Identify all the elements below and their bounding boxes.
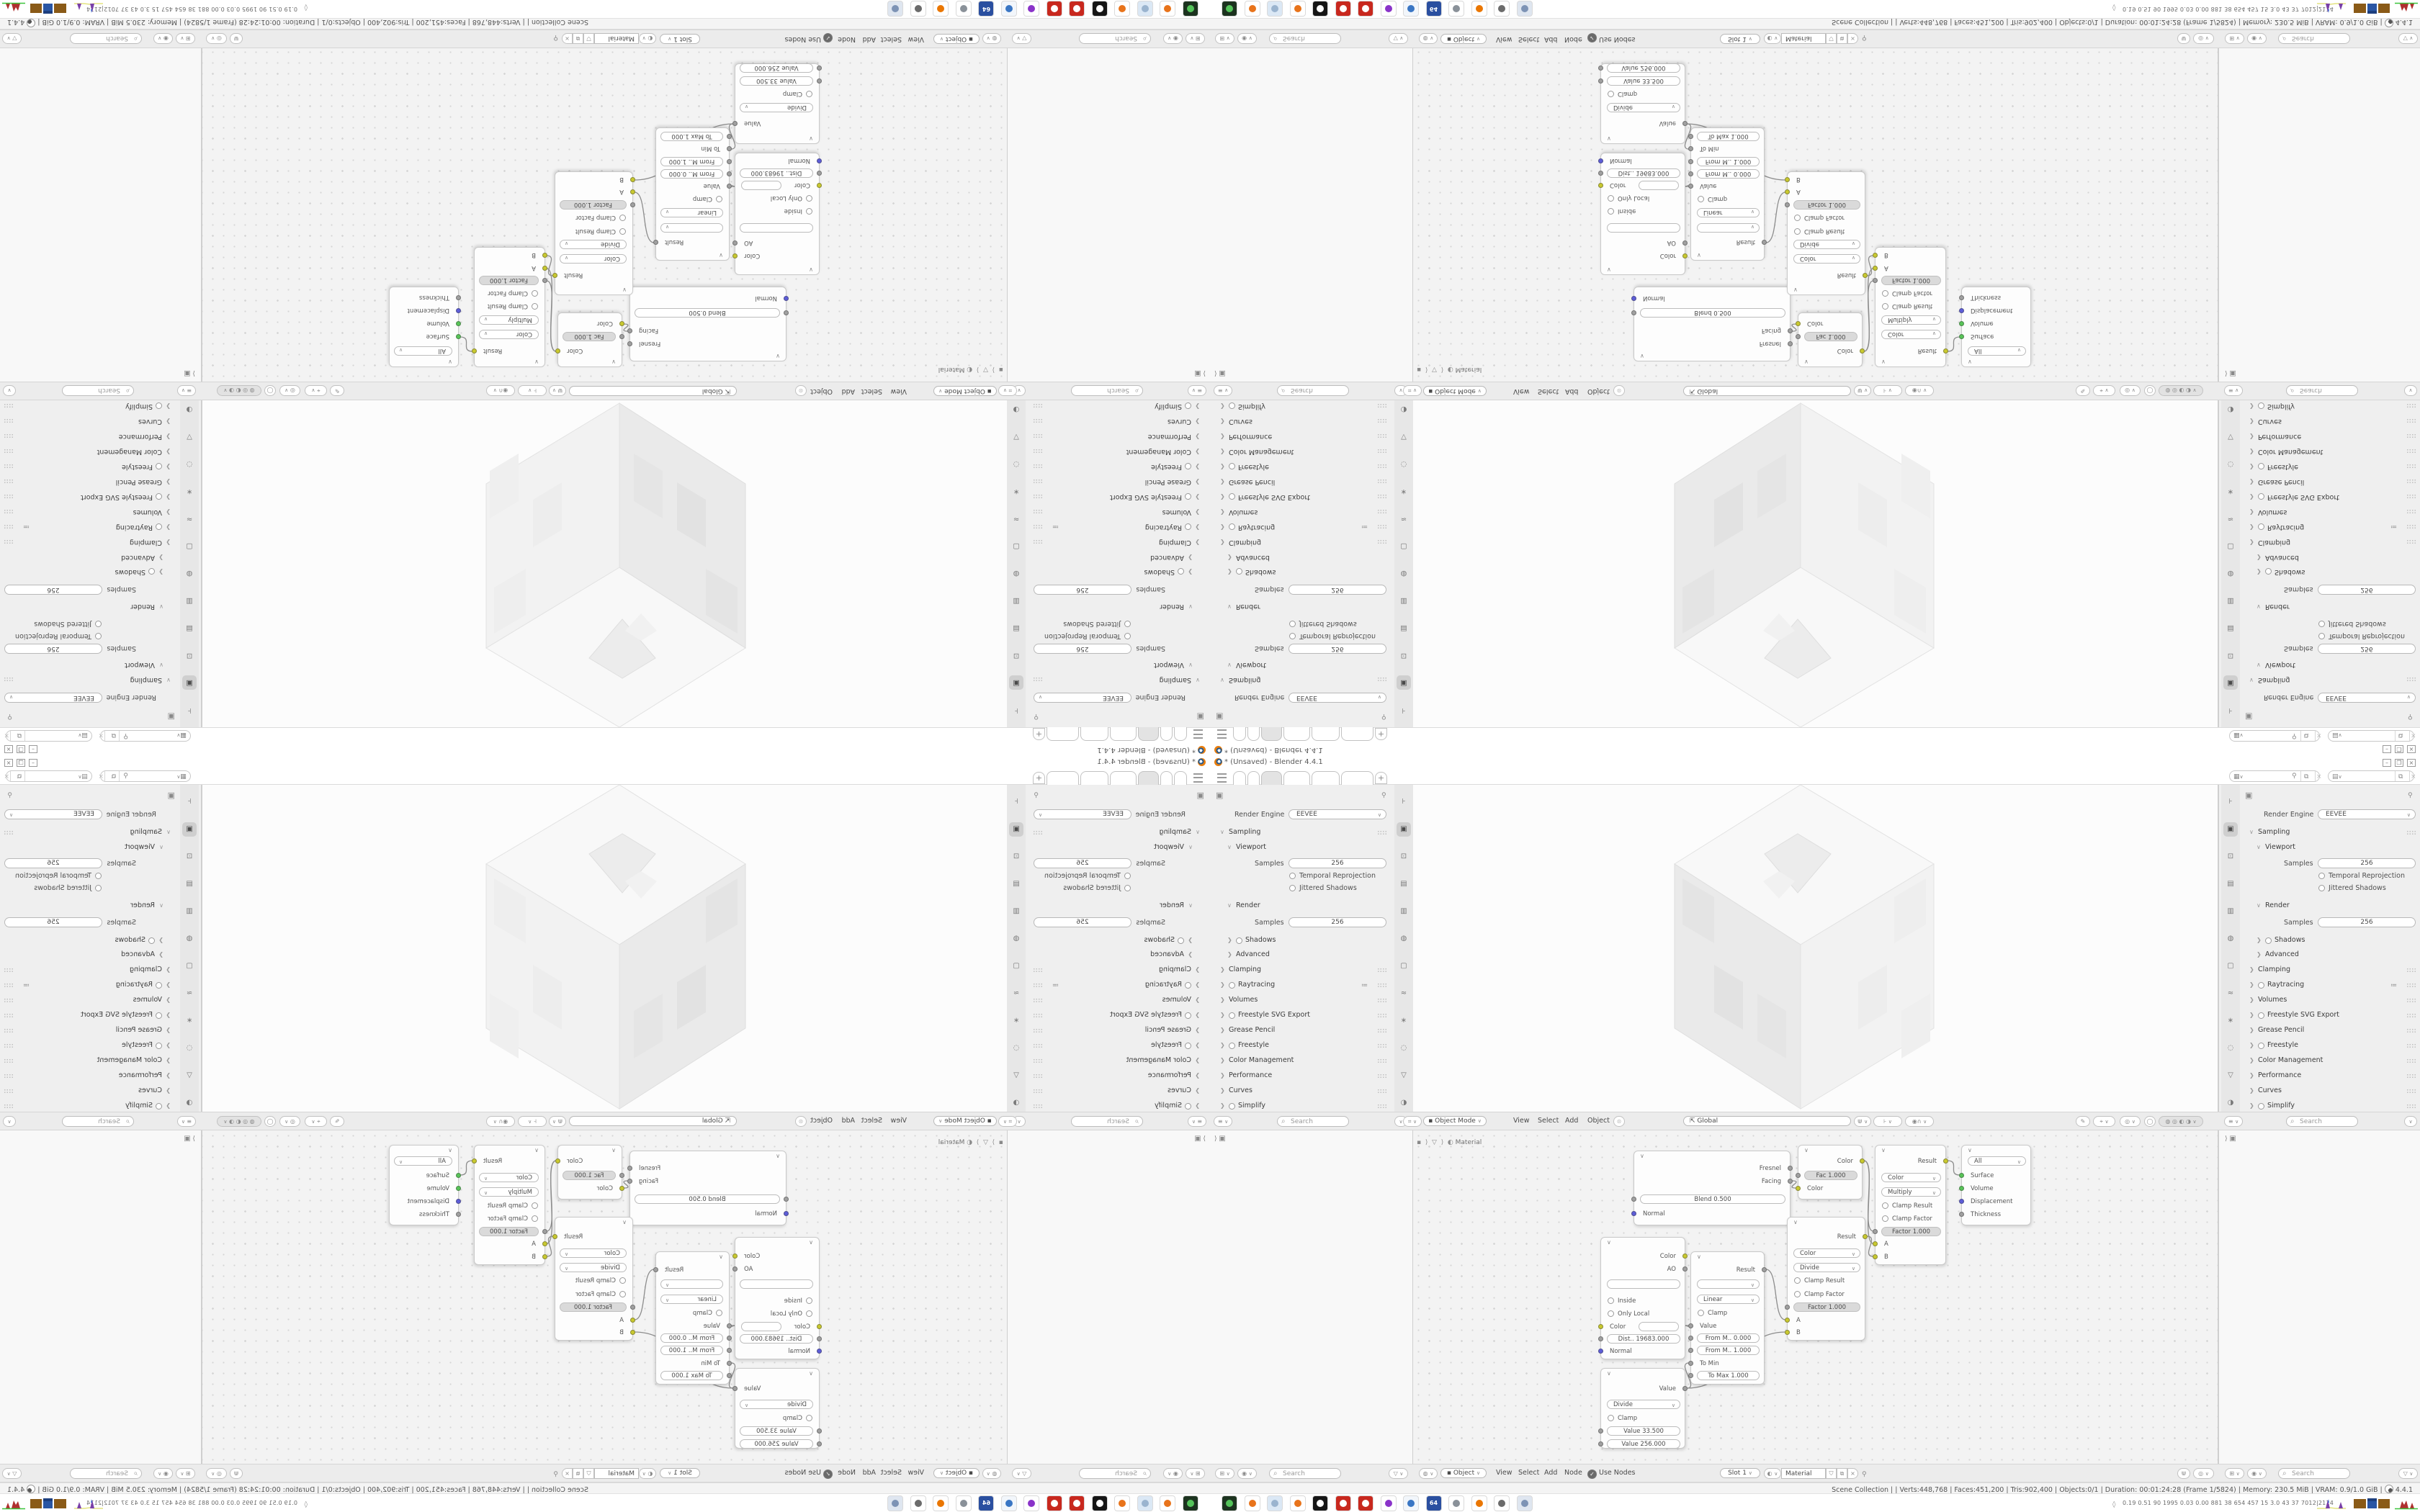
- expand-icon[interactable]: ❯: [2249, 494, 2254, 500]
- input-socket[interactable]: [619, 334, 624, 339]
- drag-handle-icon[interactable]: [1033, 509, 1043, 514]
- physics-properties-tab-icon[interactable]: ◌: [182, 456, 197, 471]
- enable-checkbox[interactable]: [156, 402, 162, 409]
- expand-icon[interactable]: ∨: [2257, 844, 2261, 850]
- object-properties-tab-icon[interactable]: ▢: [1009, 959, 1023, 973]
- input-socket[interactable]: [1785, 1318, 1790, 1323]
- enum-dropdown[interactable]: All∨: [394, 346, 452, 356]
- drag-handle-icon[interactable]: [4, 524, 14, 529]
- panel-section-label[interactable]: Curves: [1168, 1086, 1191, 1094]
- output-socket[interactable]: [732, 121, 738, 126]
- snap-magnet-icon[interactable]: ⋓ ∨: [1854, 385, 1871, 396]
- tools-app-icon[interactable]: [956, 1, 972, 17]
- panel-section-label[interactable]: Render: [130, 603, 155, 611]
- input-socket[interactable]: [1598, 1336, 1603, 1341]
- drag-handle-icon[interactable]: [4, 983, 14, 988]
- expand-icon[interactable]: ❯: [2249, 996, 2254, 1003]
- operator-icon[interactable]: ⊛: [1613, 385, 1625, 396]
- value-field[interactable]: Blend 0.500: [1640, 308, 1785, 318]
- node-checkbox[interactable]: [716, 196, 722, 202]
- panel-section-label[interactable]: Clamping: [1229, 539, 1261, 546]
- view-layer-properties-tab-icon[interactable]: ▤: [1009, 877, 1023, 891]
- render-properties-tab-icon[interactable]: ▣: [2223, 675, 2238, 690]
- workspace-tab[interactable]: [1080, 771, 1108, 785]
- pin-icon[interactable]: ⚲: [1381, 791, 1386, 801]
- enum-dropdown[interactable]: All∨: [1968, 1156, 2026, 1166]
- menu-view[interactable]: View: [890, 382, 907, 400]
- panel-section-label[interactable]: Volumes: [1229, 996, 1258, 1004]
- scene-properties-tab-icon[interactable]: ▥: [182, 593, 197, 608]
- expand-icon[interactable]: ❯: [2249, 403, 2254, 410]
- node-checkbox[interactable]: [1608, 208, 1614, 215]
- settings-red-2-app-icon[interactable]: [1047, 1495, 1062, 1511]
- value-field[interactable]: Blend 0.500: [635, 308, 780, 318]
- ambient-occlusion-node[interactable]: ∨Color AO Inside Only LocalColor Dist.. …: [735, 1237, 820, 1359]
- panel-section-label[interactable]: Render: [2265, 901, 2290, 909]
- drag-handle-icon[interactable]: [2406, 403, 2416, 408]
- panel-section-label[interactable]: Viewport: [1154, 843, 1184, 851]
- enable-checkbox[interactable]: [1229, 982, 1235, 989]
- unlink-material-icon[interactable]: ×: [562, 1468, 573, 1479]
- panel-section-label[interactable]: Sampling: [1229, 676, 1260, 684]
- drag-handle-icon[interactable]: [1033, 539, 1043, 544]
- input-socket[interactable]: [1688, 1336, 1693, 1341]
- gimp-dark-app-icon[interactable]: [1312, 1, 1328, 17]
- render-properties-tab-icon[interactable]: ▣: [1009, 675, 1023, 690]
- enable-checkbox[interactable]: [2258, 463, 2264, 469]
- panel-section-label[interactable]: Advanced: [1236, 950, 1270, 958]
- input-socket[interactable]: [817, 1441, 822, 1446]
- option-checkbox[interactable]: [2318, 885, 2325, 891]
- panel-section-label[interactable]: Volumes: [1229, 508, 1258, 516]
- object-filter-dropdown[interactable]: ◉ ∨: [153, 1468, 173, 1479]
- samples-value-field[interactable]: 256: [4, 585, 102, 595]
- pin-icon[interactable]: ⚲: [7, 791, 12, 801]
- enable-checkbox[interactable]: [2258, 523, 2264, 530]
- panel-section-label[interactable]: Sampling: [1160, 676, 1191, 684]
- samples-value-field[interactable]: 256: [1289, 858, 1386, 868]
- expand-icon[interactable]: ❯: [1220, 524, 1225, 531]
- collapse-node-icon[interactable]: ∨: [1640, 353, 1644, 359]
- expand-icon[interactable]: ❯: [1195, 494, 1200, 500]
- enable-checkbox[interactable]: [1229, 463, 1235, 469]
- expand-icon[interactable]: ❯: [1188, 937, 1193, 943]
- panel-section-label[interactable]: Render: [1160, 901, 1184, 909]
- tool-properties-tab-icon[interactable]: ⊦: [1009, 795, 1023, 809]
- panel-section-label[interactable]: Freestyle SVG Export: [81, 493, 153, 501]
- input-socket[interactable]: [1598, 66, 1603, 71]
- expand-icon[interactable]: ❯: [1195, 464, 1200, 470]
- render-properties-tab-icon[interactable]: ▣: [2223, 822, 2238, 837]
- expand-icon[interactable]: ❯: [1220, 418, 1225, 425]
- output-socket[interactable]: [1943, 348, 1948, 354]
- pin-icon[interactable]: ⚲: [1381, 711, 1386, 721]
- enable-checkbox[interactable]: [1236, 937, 1242, 944]
- drag-handle-icon[interactable]: [1377, 1058, 1387, 1063]
- enable-checkbox[interactable]: [1185, 1103, 1191, 1110]
- option-checkbox[interactable]: [2318, 873, 2325, 879]
- drag-handle-icon[interactable]: [4, 1074, 14, 1079]
- expand-icon[interactable]: ❯: [158, 951, 163, 958]
- option-checkbox[interactable]: [1124, 873, 1131, 879]
- material-properties-tab-icon[interactable]: ◑: [2223, 402, 2238, 416]
- panel-section-label[interactable]: Color Management: [1126, 1056, 1191, 1064]
- enable-checkbox[interactable]: [1236, 568, 1242, 575]
- value-field[interactable]: Value 33.500: [1607, 76, 1680, 86]
- modifiers-properties-tab-icon[interactable]: ≈: [2223, 986, 2238, 1001]
- value-field[interactable]: Factor 1.000: [1793, 1302, 1860, 1312]
- expand-icon[interactable]: ∨: [1188, 603, 1193, 610]
- view-layer-properties-tab-icon[interactable]: ▤: [182, 877, 197, 891]
- input-socket[interactable]: [1873, 1254, 1878, 1259]
- enable-checkbox[interactable]: [156, 523, 162, 530]
- panel-section-label[interactable]: Curves: [138, 1086, 162, 1094]
- option-checkbox[interactable]: [1124, 621, 1131, 627]
- panel-section-label[interactable]: Color Management: [1229, 1056, 1294, 1064]
- expand-icon[interactable]: ❯: [166, 509, 171, 516]
- workspace-tab[interactable]: [1261, 771, 1282, 785]
- material-properties-tab-icon[interactable]: ◑: [182, 1096, 197, 1110]
- expand-icon[interactable]: ❯: [166, 403, 171, 410]
- expand-icon[interactable]: ❯: [2249, 1072, 2254, 1079]
- pin-icon[interactable]: ⚲: [1862, 32, 1867, 42]
- output-socket[interactable]: [1788, 328, 1793, 333]
- expand-icon[interactable]: ❯: [1220, 479, 1225, 485]
- mode-selector[interactable]: ▪ Object Mode ∨: [933, 386, 997, 396]
- expand-icon[interactable]: ∨: [159, 902, 163, 909]
- gimp-app-icon[interactable]: [910, 1495, 926, 1511]
- input-socket[interactable]: [1959, 334, 1964, 339]
- input-socket[interactable]: [1598, 1349, 1603, 1354]
- panel-section-label[interactable]: Freestyle: [1151, 1041, 1182, 1049]
- scene-selector[interactable]: ▦∨ ⚲ ⧉ ×: [100, 730, 191, 742]
- drag-handle-icon[interactable]: [1033, 830, 1043, 835]
- search-input[interactable]: Search: [2278, 1468, 2350, 1479]
- panel-section-label[interactable]: Freestyle SVG Export: [2267, 1011, 2339, 1019]
- option-checkbox[interactable]: [1289, 885, 1296, 891]
- collapse-node-icon[interactable]: ∨: [719, 1254, 723, 1260]
- enable-checkbox[interactable]: [1229, 493, 1235, 500]
- value-field[interactable]: To Max 1.000: [660, 132, 723, 141]
- drag-handle-icon[interactable]: [2406, 1043, 2416, 1048]
- collapse-node-icon[interactable]: ∨: [1793, 287, 1798, 293]
- panel-section-label[interactable]: Sampling: [2258, 828, 2290, 836]
- workspace-tab[interactable]: [1233, 771, 1246, 785]
- node-checkbox[interactable]: [532, 290, 538, 297]
- view-layer-properties-tab-icon[interactable]: ▤: [1009, 621, 1023, 635]
- drag-handle-icon[interactable]: [1377, 403, 1387, 408]
- expand-icon[interactable]: ❯: [1220, 1057, 1225, 1063]
- expand-icon[interactable]: ❯: [166, 996, 171, 1003]
- overlays-dropdown[interactable]: ◎ ∨: [279, 1116, 300, 1127]
- gimp-app-icon[interactable]: [1494, 1, 1510, 17]
- menu-object[interactable]: Object: [1587, 1112, 1610, 1130]
- mix-divide-node[interactable]: ∨Result Color∨Divide∨ Clamp Result Clamp…: [1787, 1217, 1865, 1341]
- tool-properties-tab-icon[interactable]: ⊦: [1397, 795, 1411, 809]
- object-filter-dropdown[interactable]: ◉ ∨: [153, 33, 173, 44]
- samples-value-field[interactable]: 256: [2318, 585, 2416, 595]
- enable-checkbox[interactable]: [2258, 1012, 2264, 1019]
- physics-properties-tab-icon[interactable]: ◌: [1009, 1041, 1023, 1056]
- scene-properties-tab-icon[interactable]: ▥: [2223, 593, 2238, 608]
- expand-icon[interactable]: ❯: [1220, 996, 1225, 1003]
- particles-properties-tab-icon[interactable]: ∗: [2223, 484, 2238, 498]
- unlink-icon[interactable]: ×: [2316, 730, 2322, 740]
- output-socket[interactable]: [1788, 341, 1793, 346]
- enable-checkbox[interactable]: [1229, 1043, 1235, 1049]
- new-material-icon[interactable]: ⧉: [1837, 33, 1847, 44]
- pin-icon[interactable]: ⚲: [1034, 791, 1039, 801]
- gizmo-dropdown[interactable]: ⌖ ∨: [305, 1116, 327, 1127]
- collapse-node-icon[interactable]: ∨: [809, 135, 813, 142]
- panel-section-label[interactable]: Color Management: [97, 448, 162, 456]
- value-field[interactable]: Value 256.000: [1607, 1439, 1680, 1449]
- value-field[interactable]: Fac 1.000: [1804, 332, 1857, 341]
- floppy-64-app-icon[interactable]: 64: [1426, 1495, 1442, 1511]
- tools-app-icon[interactable]: [1448, 1, 1464, 17]
- enum-dropdown[interactable]: Color∨: [1793, 254, 1860, 264]
- enum-dropdown[interactable]: Linear∨: [660, 208, 723, 217]
- invert-color-node[interactable]: ∨Color Fac 1.000Color: [557, 1145, 622, 1200]
- expand-icon[interactable]: ∨: [2257, 603, 2261, 610]
- input-socket[interactable]: [542, 1229, 547, 1234]
- filter-funnel-dropdown[interactable]: ▽ ∨: [2, 33, 22, 44]
- invert-color-node[interactable]: ∨Color Fac 1.000Color: [1798, 312, 1863, 367]
- panel-section-label[interactable]: Curves: [1229, 1086, 1252, 1094]
- search-input[interactable]: Search: [1079, 1468, 1151, 1479]
- add-workspace-button[interactable]: +: [1033, 772, 1045, 784]
- add-workspace-button[interactable]: +: [1375, 772, 1387, 784]
- expand-icon[interactable]: ❯: [1195, 981, 1200, 988]
- enum-dropdown[interactable]: Multiply∨: [1881, 315, 1941, 325]
- node-checkbox[interactable]: [1882, 303, 1888, 310]
- input-socket[interactable]: [456, 1212, 461, 1217]
- panel-section-label[interactable]: Shadows: [115, 936, 145, 944]
- ambient-occlusion-node[interactable]: ∨Color AO Inside Only LocalColor Dist.. …: [1600, 153, 1685, 275]
- expand-icon[interactable]: ∨: [1188, 662, 1193, 668]
- overlays-dropdown[interactable]: ◎ ∨: [2193, 1468, 2214, 1479]
- editor-type-dropdown[interactable]: ◍ ∨: [1419, 33, 1438, 44]
- drag-handle-icon[interactable]: [1377, 449, 1387, 454]
- maximize-button[interactable]: ❐: [17, 759, 25, 767]
- workspace-tab[interactable]: [1312, 727, 1340, 741]
- os-title-bar[interactable]: * (Unsaved) - Blender 4.4.1 – ❐ ×: [0, 756, 1210, 768]
- panel-section-label[interactable]: Clamping: [1159, 539, 1191, 546]
- pin-icon[interactable]: ⚲: [2408, 711, 2413, 721]
- drag-handle-icon[interactable]: [1033, 983, 1043, 988]
- render-engine-dropdown[interactable]: EEVEE ∨: [4, 809, 102, 819]
- collapse-node-icon[interactable]: ∨: [1793, 1219, 1798, 1225]
- enum-dropdown[interactable]: Divide∨: [1793, 1263, 1860, 1272]
- enable-checkbox[interactable]: [2258, 493, 2264, 500]
- value-field[interactable]: [740, 1279, 813, 1289]
- mode-selector[interactable]: ▪ Object Mode ∨: [1423, 1116, 1487, 1126]
- drag-handle-icon[interactable]: [1033, 677, 1043, 682]
- modifiers-properties-tab-icon[interactable]: ≈: [1009, 511, 1023, 526]
- enable-checkbox[interactable]: [156, 1103, 162, 1110]
- workspace-tab[interactable]: [1047, 727, 1079, 741]
- expand-icon[interactable]: ∨: [2257, 902, 2261, 909]
- input-socket[interactable]: [1688, 159, 1693, 164]
- app-menu-icon[interactable]: [1217, 773, 1227, 783]
- enum-dropdown[interactable]: Divide∨: [1607, 103, 1680, 112]
- node-checkbox[interactable]: [619, 1291, 626, 1297]
- firefox-app-icon[interactable]: [1160, 1495, 1176, 1511]
- particles-properties-tab-icon[interactable]: ∗: [182, 484, 197, 498]
- panel-section-label[interactable]: Viewport: [1154, 661, 1184, 669]
- output-properties-tab-icon[interactable]: ⊡: [1397, 850, 1411, 864]
- drag-handle-icon[interactable]: [1033, 1028, 1043, 1033]
- annotate-dropdown[interactable]: ✎: [330, 1116, 344, 1127]
- enum-dropdown[interactable]: Color∨: [479, 330, 539, 339]
- enable-checkbox[interactable]: [1185, 402, 1191, 409]
- samples-value-field[interactable]: 256: [1289, 917, 1386, 927]
- expand-icon[interactable]: ❯: [1195, 996, 1200, 1003]
- enable-checkbox[interactable]: [1229, 523, 1235, 530]
- input-socket[interactable]: [727, 1323, 732, 1328]
- panel-section-label[interactable]: Freestyle: [1151, 463, 1182, 471]
- filter-funnel-dropdown[interactable]: ▽ ∨: [2, 1468, 22, 1479]
- drag-handle-icon[interactable]: [4, 830, 14, 835]
- input-socket[interactable]: [542, 1254, 547, 1259]
- tool-properties-tab-icon[interactable]: ⊦: [1009, 703, 1023, 717]
- view-layer-properties-tab-icon[interactable]: ▤: [1397, 621, 1411, 635]
- collapsed-panel-icon[interactable]: ⟩ ▣: [1194, 1135, 1206, 1143]
- minimize-button[interactable]: –: [2383, 759, 2391, 767]
- color-field[interactable]: [1639, 181, 1679, 190]
- firefox-2-app-icon[interactable]: [1290, 1495, 1306, 1511]
- unlink-icon[interactable]: ×: [2411, 772, 2416, 782]
- panel-section-label[interactable]: Grease Pencil: [116, 478, 162, 486]
- workspace-tab[interactable]: [1110, 771, 1137, 785]
- workspace-tab[interactable]: [1138, 771, 1159, 785]
- node-checkbox[interactable]: [1882, 1215, 1888, 1222]
- scene-properties-tab-icon[interactable]: ▥: [182, 904, 197, 919]
- panel-section-label[interactable]: Grease Pencil: [116, 1026, 162, 1034]
- tool-properties-tab-icon[interactable]: ⊦: [1397, 703, 1411, 717]
- output-socket[interactable]: [627, 1179, 632, 1184]
- output-socket[interactable]: [472, 348, 477, 354]
- output-properties-tab-icon[interactable]: ⊡: [2223, 648, 2238, 662]
- drag-handle-icon[interactable]: [4, 677, 14, 682]
- pin-icon[interactable]: ⚲: [7, 711, 12, 721]
- drag-handle-icon[interactable]: [2406, 968, 2416, 973]
- expand-icon[interactable]: ❯: [2249, 1057, 2254, 1063]
- panel-section-label[interactable]: Simplify: [125, 1102, 153, 1110]
- search-input[interactable]: Search: [2286, 1116, 2358, 1127]
- panel-section-label[interactable]: Advanced: [1150, 554, 1184, 562]
- input-socket[interactable]: [456, 1199, 461, 1204]
- enable-checkbox[interactable]: [1185, 463, 1191, 469]
- panel-section-label[interactable]: Clamping: [130, 539, 162, 546]
- panel-section-label[interactable]: Performance: [1229, 1071, 1272, 1079]
- material-icon-dropdown[interactable]: ◐ ∨: [639, 33, 656, 44]
- object-filter-dropdown[interactable]: ◉ ∨: [2247, 1468, 2267, 1479]
- gizmo-dropdown[interactable]: ⌖ ∨: [2093, 385, 2115, 396]
- overlays-dropdown[interactable]: ◎ ∨: [279, 385, 300, 396]
- menu-node[interactable]: Node: [838, 1464, 856, 1482]
- collapse-node-icon[interactable]: ∨: [622, 287, 627, 293]
- workspace-tab[interactable]: [1312, 771, 1340, 785]
- expand-icon[interactable]: ❯: [1220, 981, 1225, 988]
- menu-add[interactable]: Add: [1544, 1464, 1557, 1482]
- panel-section-label[interactable]: Volumes: [133, 508, 162, 516]
- samples-value-field[interactable]: 256: [1034, 917, 1131, 927]
- expand-icon[interactable]: ❯: [1220, 966, 1225, 973]
- fake-user-shield-icon[interactable]: ⛉: [1826, 1468, 1837, 1479]
- object-filter-dropdown[interactable]: ◉ ∨: [1237, 1468, 1257, 1479]
- panel-section-label[interactable]: Raytracing: [2267, 981, 2304, 989]
- editor-type-dropdown[interactable]: ⌗ ∨: [1403, 385, 1422, 396]
- input-socket[interactable]: [727, 184, 732, 189]
- tool-properties-tab-icon[interactable]: ⊦: [2223, 703, 2238, 717]
- mix-multiply-node[interactable]: ∨Result Color∨Multiply∨ Clamp Result Cla…: [1875, 247, 1946, 367]
- options-dropdown[interactable]: ∨: [3, 385, 16, 396]
- drag-handle-icon[interactable]: [1033, 998, 1043, 1003]
- settings-red-app-icon[interactable]: [1335, 1495, 1351, 1511]
- world-properties-tab-icon[interactable]: ◍: [182, 566, 197, 580]
- expand-icon[interactable]: ❯: [1227, 937, 1232, 943]
- node-checkbox[interactable]: [1608, 1415, 1614, 1421]
- drag-handle-icon[interactable]: [4, 509, 14, 514]
- expand-icon[interactable]: ❯: [1195, 1102, 1200, 1109]
- operator-icon[interactable]: ⊛: [795, 385, 807, 396]
- input-socket[interactable]: [1688, 134, 1693, 139]
- panel-section-label[interactable]: Curves: [1168, 418, 1191, 426]
- search-input[interactable]: Search: [62, 385, 134, 396]
- input-socket[interactable]: [1688, 1348, 1693, 1353]
- workspace-tab[interactable]: [1247, 727, 1260, 741]
- panel-section-label[interactable]: Color Management: [1126, 448, 1191, 456]
- input-socket[interactable]: [1873, 253, 1878, 258]
- samples-value-field[interactable]: 256: [1289, 585, 1386, 595]
- expand-icon[interactable]: ❯: [2249, 524, 2254, 531]
- value-field[interactable]: Factor 1.000: [479, 276, 539, 285]
- enable-checkbox[interactable]: [1178, 937, 1184, 944]
- enable-checkbox[interactable]: [156, 1012, 162, 1019]
- workspace-tab[interactable]: [1160, 771, 1173, 785]
- material-icon-dropdown[interactable]: ◐ ∨: [1764, 33, 1781, 44]
- input-socket[interactable]: [1688, 1361, 1693, 1366]
- shader-node-editor[interactable]: ▪ ⟩ ▽ ⟩ ◐ Material ∨Fresnel Facing Blend…: [1413, 48, 2218, 382]
- input-socket[interactable]: [1688, 171, 1693, 176]
- editor-type-dropdown[interactable]: ⌗ ∨: [1403, 1116, 1422, 1127]
- enum-dropdown[interactable]: Divide∨: [560, 240, 627, 249]
- collapse-node-icon[interactable]: ∨: [776, 1153, 780, 1159]
- world-properties-tab-icon[interactable]: ◍: [1397, 932, 1411, 946]
- panel-section-label[interactable]: Advanced: [2265, 950, 2299, 958]
- value-field[interactable]: Value 33.500: [740, 1426, 813, 1436]
- drag-handle-icon[interactable]: [1377, 1074, 1387, 1079]
- particles-properties-tab-icon[interactable]: ∗: [1397, 1014, 1411, 1028]
- menu-add[interactable]: Add: [1565, 382, 1578, 400]
- expand-icon[interactable]: ❯: [1220, 1102, 1225, 1109]
- drag-handle-icon[interactable]: [2406, 1058, 2416, 1063]
- samples-value-field[interactable]: 256: [4, 917, 102, 927]
- value-field[interactable]: From M.. 1.000: [1697, 1346, 1760, 1355]
- node-checkbox[interactable]: [1882, 1202, 1888, 1209]
- input-socket[interactable]: [542, 253, 547, 258]
- proportional-edit-dropdown[interactable]: ◉∩ ∨: [1905, 1116, 1934, 1127]
- filter-dropdown[interactable]: ≡ ∨: [1214, 1116, 1232, 1127]
- expand-icon[interactable]: ❯: [2249, 1042, 2254, 1048]
- modifiers-properties-tab-icon[interactable]: ≈: [182, 511, 197, 526]
- shader-node-editor[interactable]: ▪ ⟩ ▽ ⟩ ◐ Material ∨Fresnel Facing Blend…: [202, 48, 1007, 382]
- value-field[interactable]: Fac 1.000: [1804, 1171, 1857, 1180]
- input-socket[interactable]: [1796, 334, 1801, 339]
- input-socket[interactable]: [784, 1211, 789, 1216]
- input-socket[interactable]: [1631, 310, 1636, 315]
